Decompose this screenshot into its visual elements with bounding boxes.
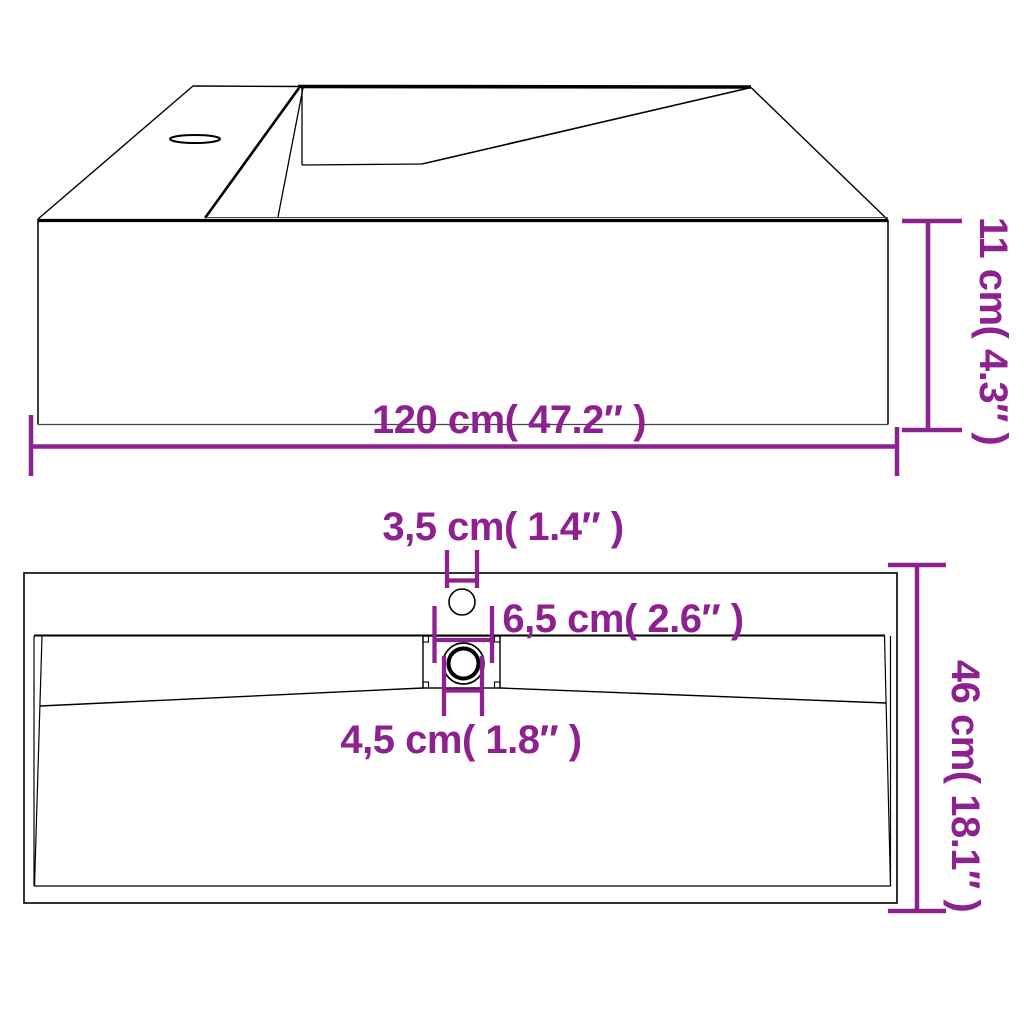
drain-box-tab-bottom-right [495,682,501,688]
drain-box-tab-top-left [423,636,429,642]
plan-floor-fold-right [500,688,886,703]
plan-left-wall-slope [35,636,43,886]
drain-box-tab-bottom-left [423,682,429,688]
top-face-left-edge [38,86,193,219]
width-dimension: 120 cm( 47.2″ ) [31,398,897,476]
dimension-diagram-page: 120 cm( 47.2″ ) 11 cm( 4.3″ ) [0,0,1024,1024]
deck-basin-divider-edge [205,88,299,218]
depth-dimension-label: 46 cm( 18.1″ ) [943,660,987,912]
height-dimension: 11 cm( 4.3″ ) [902,217,1015,445]
basin-back-rim-edge [298,87,751,88]
plan-right-wall-slope [885,636,891,886]
faucet-hole-perspective [170,135,220,143]
top-face-back-edge [193,86,300,87]
faucet-hole-dimension-label: 3,5 cm( 1.4″ ) [382,505,623,549]
depth-dimension: 46 cm( 18.1″ ) [888,565,987,912]
basin-left-wall-bottom-edge [278,88,303,217]
drain-hole-dimension-label: 4,5 cm( 1.8″ ) [340,718,581,762]
drain-flange-dimension: 6,5 cm( 2.6″ ) [433,597,744,663]
height-dimension-label: 11 cm( 4.3″ ) [971,217,1015,445]
faucet-hole-dimension: 3,5 cm( 1.4″ ) [382,505,623,588]
basin-floor-slope-line [422,88,751,165]
drain-hole-dimension: 4,5 cm( 1.8″ ) [340,656,581,762]
top-face-right-edge [751,88,888,221]
drain-flange-dimension-label: 6,5 cm( 2.6″ ) [502,597,743,641]
faucet-hole-plan [449,589,475,615]
basin-perspective-view [38,86,888,425]
drain-hole-circle [449,649,479,679]
basin-floor-front-edge [302,164,422,165]
drain-box-tab-top-right [495,636,501,642]
width-dimension-label: 120 cm( 47.2″ ) [372,398,646,442]
washbasin-dimension-diagram: 120 cm( 47.2″ ) 11 cm( 4.3″ ) [0,0,1024,1024]
plan-floor-fold-left [40,688,423,706]
